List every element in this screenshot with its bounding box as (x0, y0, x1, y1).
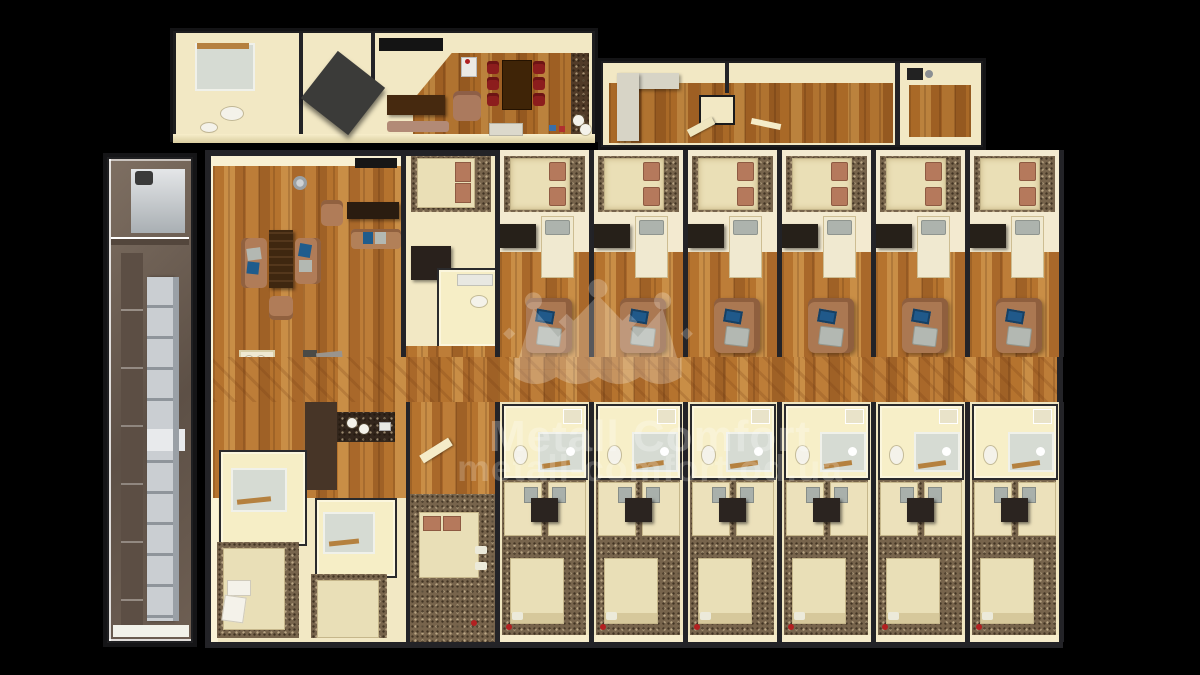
sink (606, 612, 617, 620)
double-bed (980, 158, 1040, 210)
dining-chair (487, 93, 499, 106)
glass (347, 418, 357, 428)
nightstand (907, 498, 934, 522)
sink (475, 562, 487, 570)
pillow-white (221, 595, 246, 624)
sink (475, 546, 487, 554)
pillow-brown (549, 162, 566, 181)
shower-knob (1036, 447, 1045, 456)
coffee-machine-light (465, 59, 470, 64)
pillow-brown (643, 162, 660, 181)
pillow-gray (921, 220, 946, 235)
desk (594, 224, 630, 248)
shower-knob (754, 447, 763, 456)
pillow-gray (375, 232, 386, 244)
guest-room-top (589, 150, 683, 357)
pillow-gray (724, 326, 750, 348)
bathroom (690, 404, 776, 480)
pillow-brown (1019, 162, 1036, 181)
fire-extinguisher (506, 624, 512, 630)
nightstand (1001, 498, 1028, 522)
toilet (702, 446, 715, 464)
guest-room-top (777, 150, 871, 357)
sofa (902, 298, 948, 353)
ceiling-fan (293, 176, 307, 190)
sink-item (559, 126, 565, 132)
room-floor (410, 402, 495, 494)
sink (888, 612, 899, 620)
cabinet (845, 409, 864, 424)
laptop (817, 309, 837, 325)
cabinet (939, 409, 958, 424)
nightstand (719, 498, 746, 522)
bathroom (972, 404, 1058, 480)
bathroom (596, 404, 682, 480)
pot (580, 124, 591, 135)
desk (688, 224, 724, 248)
nightstand (531, 498, 558, 522)
nightstand (813, 498, 840, 522)
laptop (911, 309, 931, 325)
sink-item (549, 125, 556, 131)
wall-base (876, 635, 965, 642)
front-wall (173, 134, 595, 143)
desk (970, 224, 1006, 248)
cabinet (657, 409, 676, 424)
double-bed (886, 158, 946, 210)
pillow-brown (643, 187, 660, 206)
shower-knob (848, 447, 857, 456)
towel-stack (227, 580, 251, 596)
kitchenette-panel (305, 402, 337, 490)
pillow-gray (299, 260, 312, 272)
pillow-brown (925, 187, 942, 206)
toilet (984, 446, 997, 464)
single-bed (541, 216, 574, 278)
shower-cabin (195, 43, 255, 91)
wall (725, 63, 729, 93)
double-bed (604, 158, 664, 210)
pillow-brown (737, 162, 754, 181)
wall-base (782, 635, 871, 642)
desk (876, 224, 912, 248)
pillow-gray (1015, 220, 1040, 235)
wall-base (500, 635, 589, 642)
dining-chair (487, 77, 499, 90)
pillow-blue (298, 243, 312, 258)
wall-unit (907, 68, 923, 80)
bench-sofa (387, 121, 449, 132)
armchair (453, 91, 481, 121)
bathroom (502, 404, 588, 480)
fire-extinguisher (600, 624, 606, 630)
sofa (526, 298, 572, 353)
pillow-brown (423, 516, 441, 531)
bath-mat (201, 123, 217, 132)
laptop (723, 309, 743, 325)
stairwell (103, 153, 197, 647)
landing-fixture (135, 171, 153, 185)
bathroom (878, 404, 964, 480)
shower-knob (566, 447, 575, 456)
sofa (620, 298, 666, 353)
top-left-wing (170, 28, 598, 142)
lower-landing (113, 625, 189, 637)
bed (317, 580, 379, 638)
single-bed (635, 216, 668, 278)
dining-chair (487, 61, 499, 74)
wall-base (970, 635, 1059, 642)
pillow-gray (545, 220, 570, 235)
stair-railing (173, 277, 179, 621)
single-bed (729, 216, 762, 278)
guest-room-bottom (683, 402, 777, 642)
armchair (321, 200, 343, 226)
pillow-gray (536, 326, 562, 348)
laptop (1005, 309, 1025, 325)
shower-knob (942, 447, 951, 456)
pillow-brown (831, 187, 848, 206)
desk (500, 224, 536, 248)
wall (895, 63, 900, 145)
corridor-pattern (213, 357, 1057, 402)
wall (299, 33, 303, 134)
pillow-brown (831, 162, 848, 181)
pillow-gray (630, 326, 656, 348)
guest-room-top (965, 150, 1059, 357)
pillow-brown (737, 187, 754, 206)
mid-landing (147, 429, 185, 451)
toilet (471, 296, 487, 307)
coffee-table (269, 230, 293, 288)
landing-divider (111, 239, 189, 245)
towel-rail (197, 43, 249, 49)
double-bed (698, 158, 758, 210)
pillow-gray (912, 326, 938, 348)
pillow-brown (549, 187, 566, 206)
shower-cabin (323, 512, 375, 554)
guest-room-bottom (777, 402, 871, 642)
shower-knob (660, 447, 669, 456)
kitchen-counter (489, 123, 523, 136)
fire-extinguisher (788, 624, 794, 630)
laptop (629, 309, 649, 325)
fire-extinguisher (976, 624, 982, 630)
guest-room-top (871, 150, 965, 357)
toilet (890, 446, 903, 464)
top-right-wing (598, 58, 986, 150)
sink-counter (457, 274, 493, 286)
toilet (514, 446, 527, 464)
shower-cabin (231, 468, 287, 512)
nightstand (625, 498, 652, 522)
cabinet (1033, 409, 1052, 424)
bathroom (784, 404, 870, 480)
laptop (535, 309, 555, 325)
dining-chair (533, 61, 545, 74)
pillow-gray (1006, 326, 1032, 348)
fire-extinguisher (694, 624, 700, 630)
pillow-brown (455, 162, 471, 182)
guest-rooms-bottom (495, 402, 1064, 642)
toilet (221, 107, 243, 120)
armchair (269, 296, 293, 320)
wall-base (688, 635, 777, 642)
fire-extinguisher (471, 620, 477, 626)
sofa (808, 298, 854, 353)
pillow-blue (246, 261, 259, 274)
guest-room-top (683, 150, 777, 357)
fire-extinguisher (882, 624, 888, 630)
sink (982, 612, 993, 620)
pillow-gray (818, 326, 844, 348)
cabinet (751, 409, 770, 424)
guest-room-bottom (965, 402, 1059, 642)
pillow-brown (925, 162, 942, 181)
guest-room-bottom (589, 402, 683, 642)
pillow-gray (246, 247, 262, 261)
wall-south (205, 642, 1063, 648)
glass (359, 424, 369, 434)
pillow-gray (827, 220, 852, 235)
reception-counter-leg (617, 73, 639, 141)
stair-wall-ledges (121, 253, 143, 629)
pillow-brown (1019, 187, 1036, 206)
pillow-gray (639, 220, 664, 235)
tv-panel (379, 38, 443, 51)
cabinet (563, 409, 582, 424)
toilet (796, 446, 809, 464)
guest-room-bottom (495, 402, 589, 642)
pillow-blue (363, 232, 373, 244)
floorplan-render: Metall Comfort metall-comfort.od.ua (0, 0, 1200, 675)
sink (794, 612, 805, 620)
guest-room-bottom (871, 402, 965, 642)
sink (512, 612, 523, 620)
coffee-table (387, 95, 445, 115)
pillow-brown (443, 516, 461, 531)
room-floor (909, 85, 971, 137)
dining-chair (533, 93, 545, 106)
sofa (996, 298, 1042, 353)
pillow-gray (733, 220, 758, 235)
sink (700, 612, 711, 620)
outlet (379, 422, 391, 431)
wall-shelf (355, 158, 397, 168)
guest-rooms-top (495, 150, 1064, 357)
toilet (608, 446, 621, 464)
dining-chair (533, 77, 545, 90)
desk (782, 224, 818, 248)
double-bed (510, 158, 570, 210)
desk (347, 202, 399, 219)
main-block (205, 150, 1063, 648)
single-bed (823, 216, 856, 278)
single-bed (1011, 216, 1044, 278)
guest-room-top (495, 150, 589, 357)
single-bed (917, 216, 950, 278)
pillow-brown (455, 183, 471, 203)
dining-chairs (487, 61, 545, 106)
sofa (714, 298, 760, 353)
wall-base (594, 635, 683, 642)
fixture (925, 70, 933, 78)
corridor-floor (609, 83, 893, 143)
double-bed (792, 158, 852, 210)
